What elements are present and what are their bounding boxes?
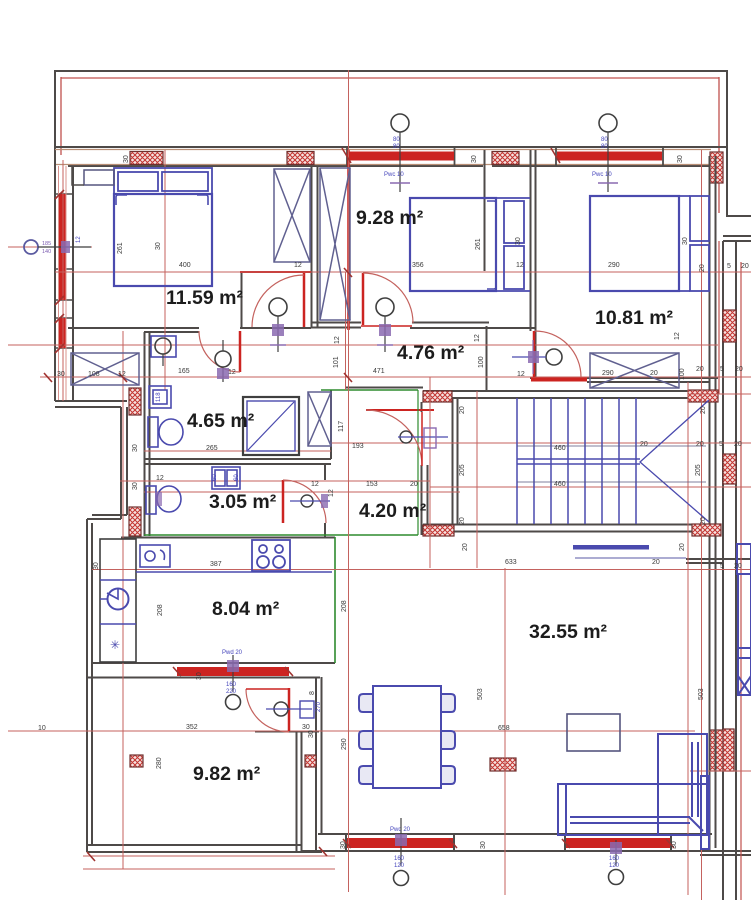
- svg-text:265: 265: [206, 445, 218, 452]
- svg-text:Pwd 20: Pwd 20: [390, 827, 411, 833]
- svg-text:140: 140: [42, 249, 51, 255]
- svg-text:80: 80: [393, 144, 400, 150]
- svg-text:387: 387: [210, 561, 222, 568]
- svg-text:503: 503: [477, 688, 484, 700]
- svg-text:✳: ✳: [110, 638, 120, 652]
- svg-text:205: 205: [695, 464, 702, 476]
- svg-text:20: 20: [459, 517, 466, 525]
- svg-text:290: 290: [602, 370, 614, 377]
- svg-text:30: 30: [515, 237, 522, 245]
- svg-text:270: 270: [316, 701, 322, 712]
- svg-text:30: 30: [155, 242, 162, 250]
- svg-text:20: 20: [700, 517, 707, 525]
- svg-text:80: 80: [601, 137, 608, 143]
- svg-text:30: 30: [340, 841, 347, 849]
- svg-text:8: 8: [309, 691, 316, 695]
- svg-text:117: 117: [338, 421, 345, 432]
- svg-text:290: 290: [608, 262, 620, 269]
- svg-text:30: 30: [302, 724, 310, 731]
- svg-text:193: 193: [352, 443, 364, 450]
- svg-text:471: 471: [373, 368, 385, 375]
- svg-text:20: 20: [679, 543, 686, 551]
- svg-text:20: 20: [699, 264, 706, 272]
- svg-text:108: 108: [88, 371, 100, 378]
- svg-text:205: 205: [459, 464, 466, 476]
- svg-text:4.20 m²: 4.20 m²: [359, 500, 427, 522]
- svg-text:12: 12: [228, 369, 236, 376]
- svg-text:Pwd 20: Pwd 20: [222, 650, 243, 656]
- svg-text:460: 460: [554, 481, 566, 488]
- svg-text:20: 20: [696, 366, 704, 373]
- svg-text:400: 400: [179, 262, 191, 269]
- svg-text:261: 261: [475, 238, 482, 250]
- svg-text:503: 503: [698, 688, 705, 700]
- svg-text:101: 101: [333, 356, 340, 368]
- svg-text:118: 118: [156, 392, 162, 402]
- svg-text:12: 12: [118, 371, 126, 378]
- svg-text:658: 658: [498, 725, 510, 732]
- svg-text:8.04 m²: 8.04 m²: [212, 598, 280, 620]
- svg-text:30: 30: [308, 730, 315, 738]
- svg-text:100: 100: [679, 368, 686, 380]
- svg-text:30: 30: [132, 482, 139, 490]
- svg-text:280: 280: [156, 757, 163, 769]
- svg-text:12: 12: [517, 371, 525, 378]
- svg-text:20: 20: [734, 563, 742, 570]
- svg-text:160: 160: [394, 856, 405, 862]
- svg-text:20: 20: [652, 559, 660, 566]
- svg-text:20: 20: [462, 543, 469, 551]
- svg-text:261: 261: [117, 242, 124, 254]
- svg-text:30: 30: [123, 155, 130, 163]
- svg-text:633: 633: [505, 559, 517, 566]
- svg-text:20: 20: [735, 366, 743, 373]
- svg-text:12: 12: [674, 332, 681, 340]
- svg-text:20: 20: [696, 441, 704, 448]
- svg-text:12: 12: [156, 475, 164, 482]
- svg-text:20: 20: [741, 263, 749, 270]
- svg-text:9.28 m²: 9.28 m²: [356, 207, 424, 229]
- svg-text:30: 30: [57, 371, 65, 378]
- svg-text:160: 160: [226, 682, 237, 688]
- svg-text:30: 30: [196, 672, 203, 680]
- svg-text:30: 30: [480, 841, 487, 849]
- svg-text:20: 20: [650, 370, 658, 377]
- svg-text:20: 20: [734, 441, 742, 448]
- svg-text:5: 5: [720, 366, 724, 373]
- svg-text:208: 208: [157, 604, 164, 616]
- svg-text:356: 356: [412, 262, 424, 269]
- svg-text:30: 30: [132, 444, 139, 452]
- svg-text:120: 120: [394, 863, 405, 869]
- svg-text:12: 12: [516, 262, 524, 269]
- svg-text:100: 100: [478, 356, 485, 368]
- svg-text:153: 153: [366, 481, 378, 488]
- svg-text:30: 30: [93, 562, 100, 570]
- svg-text:5: 5: [720, 563, 724, 570]
- svg-text:160: 160: [609, 856, 620, 862]
- svg-text:12: 12: [474, 334, 481, 342]
- svg-text:Pwc 10: Pwc 10: [592, 172, 612, 178]
- svg-text:60: 60: [212, 474, 218, 481]
- svg-text:9.82 m²: 9.82 m²: [193, 763, 261, 785]
- svg-text:12: 12: [334, 336, 341, 344]
- svg-text:60: 60: [234, 474, 240, 481]
- svg-text:185: 185: [42, 241, 51, 247]
- svg-text:80: 80: [393, 137, 400, 143]
- svg-text:11.59 m²: 11.59 m²: [166, 287, 243, 309]
- svg-text:12: 12: [294, 262, 302, 269]
- svg-text:20: 20: [700, 406, 707, 414]
- svg-text:4.76 m²: 4.76 m²: [397, 342, 465, 364]
- svg-text:Pwc 10: Pwc 10: [384, 172, 404, 178]
- svg-text:80: 80: [601, 144, 608, 150]
- svg-text:20: 20: [410, 481, 418, 488]
- svg-text:12: 12: [76, 236, 82, 243]
- svg-text:12: 12: [311, 481, 319, 488]
- svg-text:10: 10: [38, 725, 46, 732]
- svg-text:30: 30: [682, 237, 689, 245]
- svg-text:3.05 m²: 3.05 m²: [209, 491, 277, 513]
- svg-text:165: 165: [178, 368, 190, 375]
- svg-text:290: 290: [341, 738, 348, 750]
- svg-text:20: 20: [459, 406, 466, 414]
- svg-text:5: 5: [727, 263, 731, 270]
- svg-text:460: 460: [554, 445, 566, 452]
- svg-text:30: 30: [677, 155, 684, 163]
- svg-text:12: 12: [328, 489, 335, 497]
- svg-text:4.65 m²: 4.65 m²: [187, 410, 255, 432]
- svg-text:120: 120: [609, 863, 620, 869]
- svg-text:32.55 m²: 32.55 m²: [529, 621, 608, 643]
- svg-text:352: 352: [186, 724, 198, 731]
- svg-text:30: 30: [671, 841, 678, 849]
- svg-text:10.81 m²: 10.81 m²: [595, 307, 674, 329]
- svg-text:208: 208: [341, 600, 348, 612]
- svg-text:20: 20: [640, 441, 648, 448]
- svg-text:220: 220: [226, 689, 237, 695]
- svg-text:30: 30: [471, 155, 478, 163]
- svg-text:5: 5: [719, 441, 723, 448]
